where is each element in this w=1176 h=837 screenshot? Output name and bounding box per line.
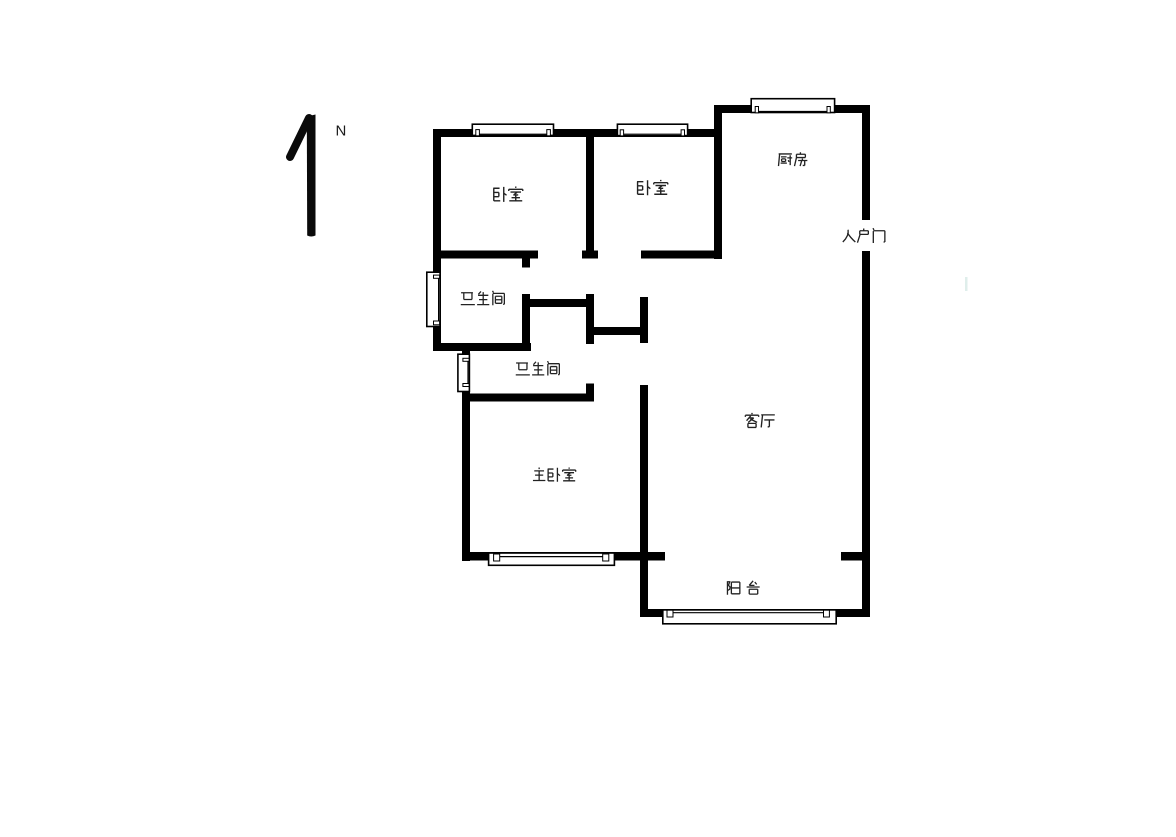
svg-text:N: N bbox=[336, 123, 347, 140]
